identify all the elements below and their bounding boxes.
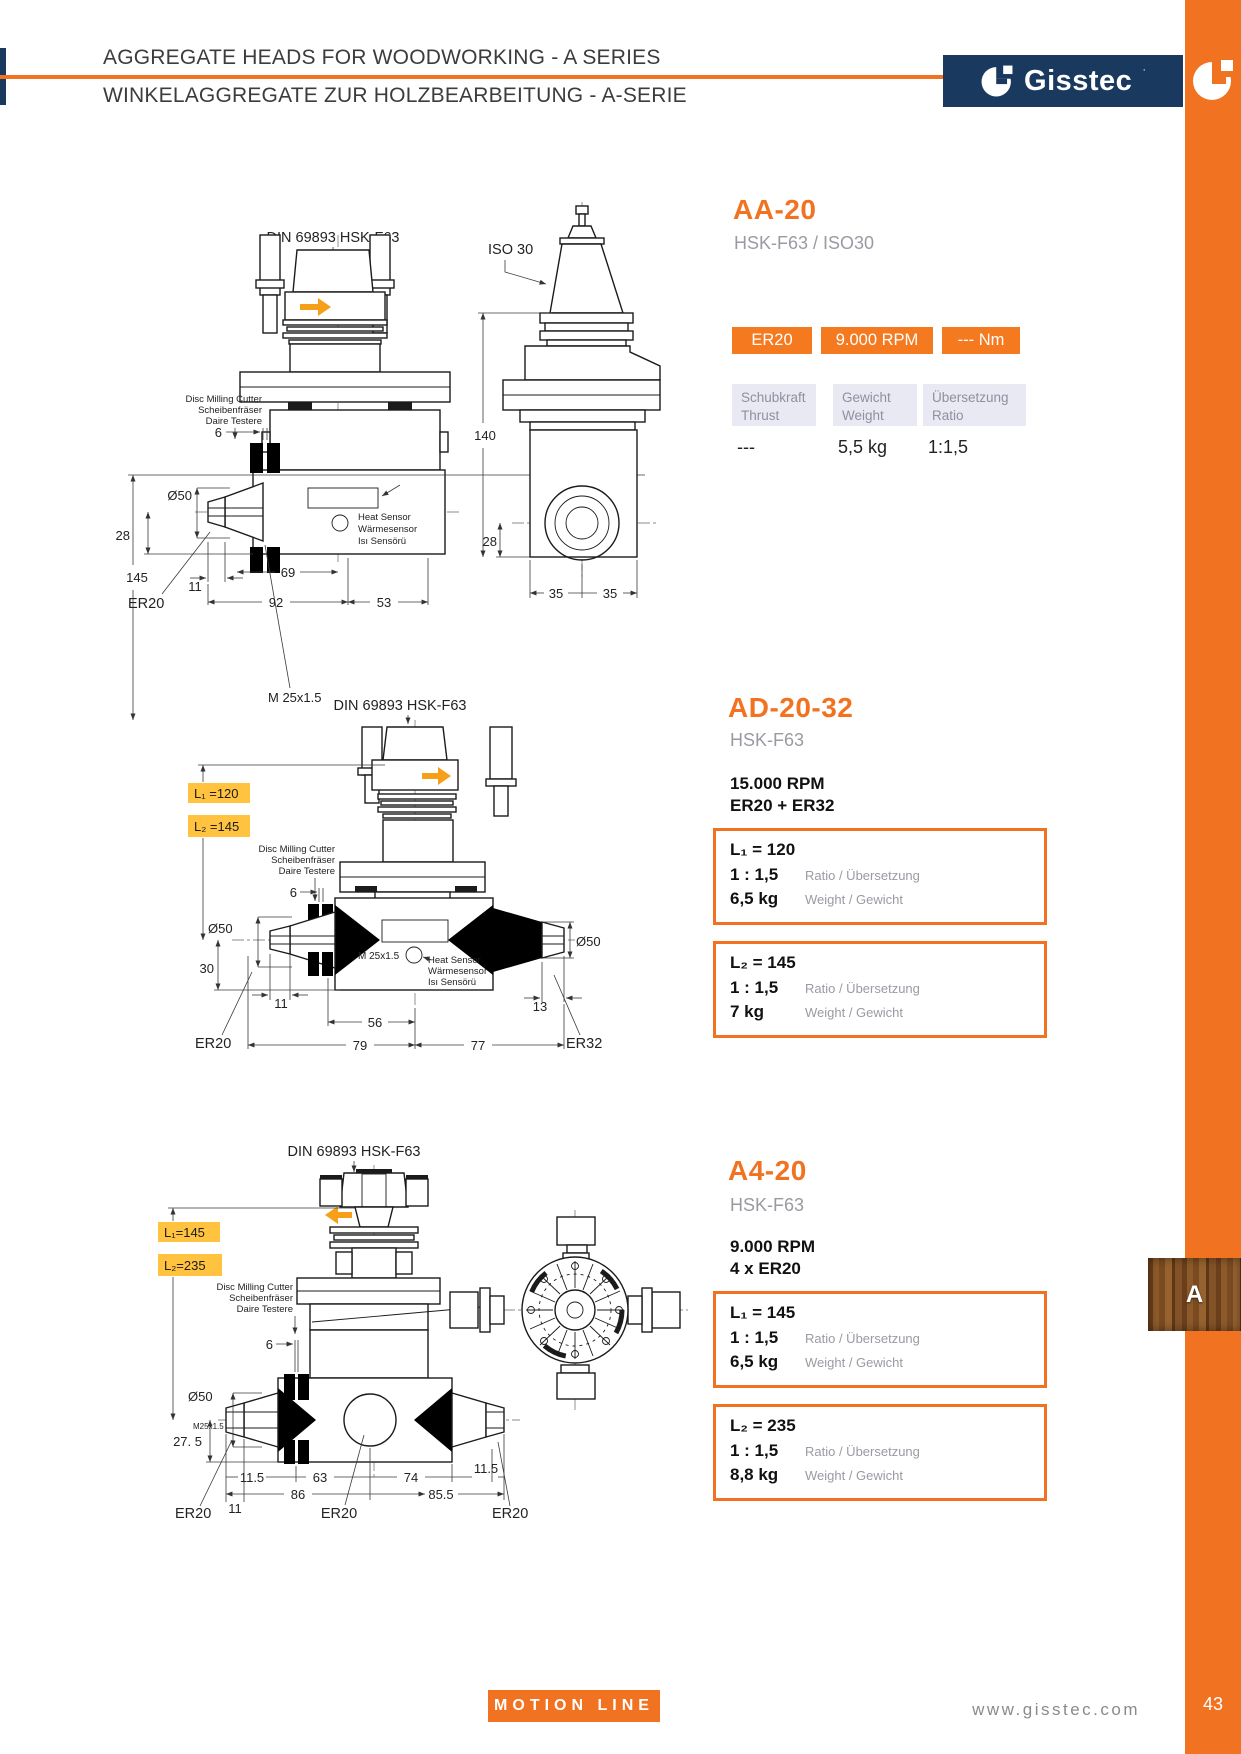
weight-value: 6,5 kg — [730, 1352, 805, 1372]
a420-technical-drawing: DIN 69893 HSK-F63 — [140, 1090, 695, 1530]
dim-35a: 35 — [549, 586, 563, 601]
dim-86: 86 — [291, 1487, 305, 1502]
ad2032-section-view: DIN 69893 HSK-F63 — [188, 698, 602, 1053]
sensor-note-tr: Isı Sensörü — [428, 977, 476, 988]
aa20-technical-drawing: DIN 69893 HSK-F63 — [100, 180, 675, 620]
cutter-note-de: Scheibenfräser — [198, 405, 262, 416]
l2-tag: L₂=235 — [164, 1258, 206, 1273]
ratio-label: Ratio / Übersetzung — [805, 1444, 920, 1459]
weight-value: 6,5 kg — [730, 889, 805, 909]
section-tab-a: A — [1148, 1258, 1241, 1331]
l2-value: L₂ = 235 — [730, 1416, 1044, 1436]
cutter-note-de: Scheibenfräser — [271, 855, 335, 866]
product-name: A4-20 — [728, 1155, 807, 1187]
dim-6: 6 — [266, 1337, 273, 1352]
a420-top-view — [450, 1210, 688, 1410]
dim-dia50-right: Ø50 — [576, 934, 601, 949]
a420-info-panel: A4-20 HSK-F63 9.000 RPM 4 x ER20 L₁ = 14… — [713, 1155, 1053, 1505]
sensor-note-tr: Isı Sensörü — [358, 536, 406, 547]
brand-name: Gisstec — [1024, 65, 1132, 98]
dim-74: 74 — [404, 1470, 418, 1485]
sensor-note-en: Heat Sensor — [358, 512, 411, 523]
page-title-de: WINKELAGGREGATE ZUR HOLZBEARBEITUNG - A-… — [103, 84, 687, 108]
product-subtitle: HSK-F63 — [730, 730, 804, 751]
aa20-front-view: ISO 30 140 28 35 35 — [474, 202, 660, 601]
l2-tag: L₂ =145 — [194, 819, 239, 834]
collet-label-er20: ER20 — [128, 596, 164, 612]
product-collets: ER20 + ER32 — [730, 796, 834, 816]
weight-value: 8,8 kg — [730, 1465, 805, 1485]
weight-value: 7 kg — [730, 1002, 805, 1022]
spec-label-en: Thrust — [741, 408, 779, 423]
cutter-note-en: Disc Milling Cutter — [185, 394, 262, 405]
collet-label-right: ER20 — [492, 1506, 528, 1522]
collet-left-label: ER20 — [195, 1036, 231, 1052]
l2-spec-box: L₂ = 145 1 : 1,5Ratio / Übersetzung 7 kg… — [713, 941, 1047, 1038]
brand-logo-box: Gisstec · — [943, 55, 1183, 107]
l1-value: L₁ = 145 — [730, 1303, 1044, 1323]
weight-label: Weight / Gewicht — [805, 1468, 903, 1483]
l2-spec-box: L₂ = 235 1 : 1,5Ratio / Übersetzung 8,8 … — [713, 1404, 1047, 1501]
collet-label-center: ER20 — [321, 1506, 357, 1522]
spindle-standard-label: DIN 69893 HSK-F63 — [288, 1144, 421, 1160]
dim-11-5-right: 11.5 — [474, 1461, 498, 1476]
dim-dia50: Ø50 — [167, 488, 192, 503]
right-orange-band: 43 — [1185, 0, 1241, 1754]
ratio-value: 1 : 1,5 — [730, 865, 805, 885]
weight-label: Weight / Gewicht — [805, 892, 903, 907]
dim-30: 30 — [200, 961, 214, 976]
product-name: AD-20-32 — [728, 692, 853, 724]
spec-value-weight: 5,5 kg — [838, 437, 887, 458]
ratio-label: Ratio / Übersetzung — [805, 981, 920, 996]
collet-right-label: ER32 — [566, 1036, 602, 1052]
dim-11-5-left: 11.5 — [240, 1470, 264, 1485]
dim-6: 6 — [290, 885, 297, 900]
dim-85-5: 85.5 — [428, 1487, 453, 1502]
product-subtitle: HSK-F63 / ISO30 — [734, 233, 874, 254]
dim-79: 79 — [353, 1038, 367, 1053]
cutter-note-tr: Daire Testere — [237, 1304, 293, 1315]
spec-label-de: Schubkraft — [741, 390, 806, 405]
page-number: 43 — [1185, 1694, 1241, 1715]
dim-13: 13 — [533, 999, 547, 1014]
dim-6: 6 — [215, 425, 222, 440]
sensor-note-de: Wärmesensor — [358, 524, 417, 535]
website-url: www.gisstec.com — [860, 1700, 1140, 1720]
l1-tag: L₁=145 — [164, 1225, 205, 1240]
spec-label-thrust: Schubkraft Thrust — [732, 384, 816, 426]
dim-11: 11 — [188, 579, 202, 594]
ad2032-info-panel: AD-20-32 HSK-F63 15.000 RPM ER20 + ER32 … — [713, 690, 1053, 1050]
sensor-note-en: Heat Sensor — [428, 955, 481, 966]
catalog-page: 43 A AGGREGATE HEADS FOR WOODWORKING - A… — [0, 0, 1241, 1754]
ratio-value: 1 : 1,5 — [730, 1328, 805, 1348]
l2-value: L₂ = 145 — [730, 953, 1044, 973]
a420-front-view: DIN 69893 HSK-F63 — [158, 1144, 528, 1522]
aa20-info-panel: AA-20 HSK-F63 / ISO30 ER20 9.000 RPM ---… — [713, 190, 1053, 470]
spec-value-thrust: --- — [737, 437, 755, 458]
dim-145: 145 — [126, 570, 148, 585]
spec-label-en: Ratio — [932, 408, 964, 423]
badge-rpm: 9.000 RPM — [821, 327, 933, 354]
l1-tag: L₁ =120 — [194, 786, 239, 801]
dim-56: 56 — [368, 1015, 382, 1030]
spec-label-en: Weight — [842, 408, 884, 423]
orange-rule — [0, 75, 943, 79]
cutter-note-en: Disc Milling Cutter — [258, 844, 335, 855]
collet-label-left: ER20 — [175, 1506, 211, 1522]
cutter-note-tr: Daire Testere — [279, 866, 335, 877]
page-title-en: AGGREGATE HEADS FOR WOODWORKING - A SERI… — [103, 46, 661, 70]
dim-dia50-left: Ø50 — [208, 921, 233, 936]
gisstec-g-icon — [1191, 58, 1235, 102]
thread-label: M25x1.5 — [193, 1422, 224, 1431]
dim-11: 11 — [274, 996, 288, 1011]
sensor-note-de: Wärmesensor — [428, 966, 487, 977]
product-collets: 4 x ER20 — [730, 1259, 801, 1279]
l1-value: L₁ = 120 — [730, 840, 1044, 860]
l1-spec-box: L₁ = 120 1 : 1,5Ratio / Übersetzung 6,5 … — [713, 828, 1047, 925]
dim-dia50: Ø50 — [188, 1389, 213, 1404]
ratio-value: 1 : 1,5 — [730, 978, 805, 998]
spec-badges: ER20 9.000 RPM --- Nm — [732, 327, 1020, 354]
cutter-note-de: Scheibenfräser — [229, 1293, 293, 1304]
thread-label: M 25x1.5 — [358, 951, 400, 962]
spec-label-weight: Gewicht Weight — [833, 384, 917, 426]
dim-35b: 35 — [603, 586, 617, 601]
spec-label-de: Übersetzung — [932, 390, 1009, 405]
taper-standard-label: ISO 30 — [488, 242, 533, 258]
dim-28-side: 28 — [116, 528, 130, 543]
spec-label-ratio: Übersetzung Ratio — [923, 384, 1026, 426]
l1-spec-box: L₁ = 145 1 : 1,5Ratio / Übersetzung 6,5 … — [713, 1291, 1047, 1388]
product-rpm: 15.000 RPM — [730, 774, 825, 794]
weight-label: Weight / Gewicht — [805, 1005, 903, 1020]
dim-53: 53 — [377, 595, 391, 610]
section-tab-letter: A — [1186, 1281, 1203, 1309]
dim-27-5: 27. 5 — [173, 1434, 202, 1449]
rotation-arrow-icon — [325, 1206, 352, 1224]
spec-value-ratio: 1:1,5 — [928, 437, 968, 458]
brand-trademark-dot: · — [1142, 64, 1146, 76]
spindle-standard-label: DIN 69893 HSK-F63 — [334, 698, 467, 714]
dim-77: 77 — [471, 1038, 485, 1053]
ratio-value: 1 : 1,5 — [730, 1441, 805, 1461]
gisstec-g-icon — [980, 64, 1014, 98]
dim-69: 69 — [281, 565, 295, 580]
dim-92: 92 — [269, 595, 283, 610]
weight-label: Weight / Gewicht — [805, 1355, 903, 1370]
badge-collet: ER20 — [732, 327, 812, 354]
badge-torque: --- Nm — [942, 327, 1020, 354]
motion-line-badge: MOTION LINE — [488, 1690, 660, 1722]
ratio-label: Ratio / Übersetzung — [805, 1331, 920, 1346]
dim-140: 140 — [474, 428, 496, 443]
dim-63: 63 — [313, 1470, 327, 1485]
ratio-label: Ratio / Übersetzung — [805, 868, 920, 883]
dim-11: 11 — [228, 1501, 242, 1516]
product-name: AA-20 — [733, 194, 816, 226]
cutter-note-en: Disc Milling Cutter — [216, 1282, 293, 1293]
product-subtitle: HSK-F63 — [730, 1195, 804, 1216]
ad2032-technical-drawing: DIN 69893 HSK-F63 — [150, 690, 620, 1065]
product-rpm: 9.000 RPM — [730, 1237, 815, 1257]
dim-28-front: 28 — [483, 534, 497, 549]
spec-label-de: Gewicht — [842, 390, 891, 405]
